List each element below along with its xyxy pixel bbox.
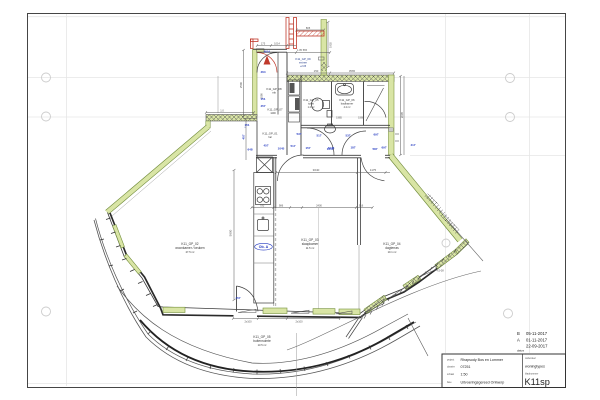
svg-text:537: 537 — [296, 132, 301, 136]
svg-text:697: 697 — [381, 146, 386, 150]
svg-text:07251: 07251 — [461, 365, 471, 369]
svg-text:10.1 m²: 10.1 m² — [388, 250, 397, 254]
svg-text:27.5 m²: 27.5 m² — [186, 250, 195, 254]
svg-text:457: 457 — [263, 144, 268, 148]
svg-text:bladnummer: bladnummer — [525, 373, 538, 376]
svg-text:woonkamer / keuken: woonkamer / keuken — [175, 246, 205, 250]
svg-text:151: 151 — [260, 97, 265, 101]
svg-text:05-11-2017: 05-11-2017 — [526, 331, 548, 336]
svg-text:4.5-08: 4.5-08 — [436, 269, 444, 273]
svg-text:1175: 1175 — [370, 168, 377, 172]
svg-text:2400: 2400 — [316, 203, 322, 207]
svg-text:mk: mk — [272, 91, 276, 95]
svg-text:805: 805 — [306, 26, 311, 30]
svg-text:464: 464 — [260, 70, 265, 74]
svg-text:datum: datum — [517, 348, 524, 352]
svg-text:2695: 2695 — [400, 111, 404, 118]
svg-text:187: 187 — [350, 146, 355, 150]
svg-text:badkamer: badkamer — [341, 102, 354, 106]
svg-text:1985: 1985 — [336, 116, 342, 120]
svg-text:K11_GP_07: K11_GP_07 — [267, 108, 282, 112]
svg-text:2x100: 2x100 — [295, 320, 303, 324]
svg-text:587: 587 — [372, 147, 377, 151]
svg-text:Rhapsody Bos en Lommer: Rhapsody Bos en Lommer — [461, 358, 504, 362]
svg-text:648: 648 — [247, 148, 252, 152]
svg-text:700: 700 — [260, 203, 265, 207]
svg-text:project: project — [447, 359, 455, 362]
svg-text:1290: 1290 — [270, 112, 276, 115]
svg-text:150: 150 — [314, 69, 319, 73]
svg-text:5800: 5800 — [229, 229, 233, 236]
svg-text:A: A — [517, 338, 520, 343]
svg-text:•: • — [244, 125, 245, 129]
svg-text:dagterras: dagterras — [385, 246, 399, 250]
svg-text:fase: fase — [447, 381, 452, 384]
svg-text:1.0: 1.0 — [220, 109, 224, 113]
svg-text:697: 697 — [373, 133, 378, 137]
svg-text:13.5 m²: 13.5 m² — [258, 343, 267, 347]
svg-text:K04: K04 — [264, 50, 270, 54]
svg-text:woningtypes: woningtypes — [525, 365, 545, 369]
svg-text:schaal: schaal — [447, 373, 454, 376]
svg-text:175: 175 — [261, 42, 266, 46]
svg-text:01-11-2017: 01-11-2017 — [526, 338, 548, 343]
svg-text:Uitvoeringsgereed Ontwerp: Uitvoeringsgereed Ontwerp — [461, 380, 505, 384]
svg-text:22-09-2017: 22-09-2017 — [526, 344, 548, 349]
svg-text:entree: entree — [299, 61, 307, 65]
svg-text:457: 457 — [260, 104, 265, 108]
svg-text:1955: 1955 — [329, 42, 333, 48]
svg-text:1980: 1980 — [358, 116, 364, 120]
svg-text:1014: 1014 — [274, 42, 280, 46]
svg-text:11.5 m²: 11.5 m² — [306, 246, 315, 250]
svg-text:Ob. A: Ob. A — [259, 245, 269, 249]
svg-text:157: 157 — [305, 146, 310, 150]
svg-text:hal: hal — [268, 136, 272, 139]
svg-text:+2.05: +2.05 — [300, 65, 307, 68]
svg-text:toilet: toilet — [308, 102, 314, 106]
svg-text:dossier: dossier — [447, 366, 455, 369]
svg-text:2x100: 2x100 — [244, 320, 252, 324]
svg-text:B: B — [517, 331, 520, 336]
svg-text:537: 537 — [345, 134, 350, 138]
svg-text:4.2 m²: 4.2 m² — [344, 106, 351, 109]
svg-text:517: 517 — [316, 134, 321, 138]
svg-text:3565: 3565 — [349, 69, 356, 73]
svg-text:1311: 1311 — [327, 147, 334, 151]
svg-text:3040: 3040 — [313, 168, 320, 172]
svg-text:457: 457 — [235, 296, 240, 300]
svg-text:916: 916 — [359, 203, 364, 207]
svg-text:986: 986 — [279, 203, 284, 207]
svg-text:1:50: 1:50 — [461, 373, 468, 377]
svg-text:1.2 m²: 1.2 m² — [308, 106, 315, 109]
svg-text:517: 517 — [290, 144, 295, 148]
svg-text:K11sp: K11sp — [525, 377, 550, 387]
svg-text:457: 457 — [242, 134, 246, 139]
svg-text:K11_GP_01: K11_GP_01 — [262, 132, 277, 136]
svg-text:2580: 2580 — [239, 81, 243, 88]
svg-text:1045: 1045 — [278, 147, 285, 151]
svg-text:slaapkamer: slaapkamer — [302, 242, 319, 246]
svg-text:417: 417 — [410, 143, 415, 147]
svg-text:onderdeel: onderdeel — [525, 357, 536, 360]
svg-text:1.05 565: 1.05 565 — [297, 48, 308, 52]
svg-text:buitenruimte: buitenruimte — [253, 339, 271, 343]
